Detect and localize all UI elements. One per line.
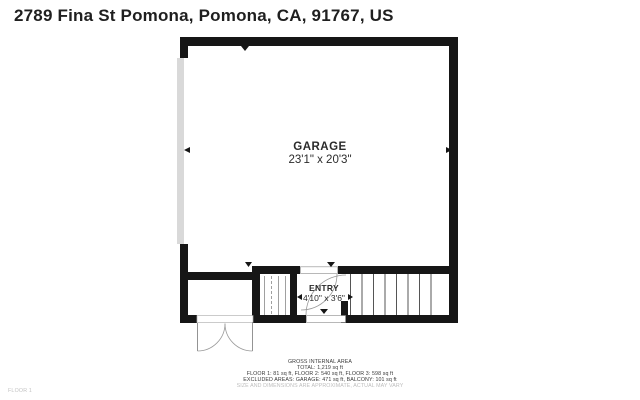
area-disclaimer: SIZE AND DIMENSIONS ARE APPROXIMATE, ACT… xyxy=(170,383,470,389)
tick-down-entry-top xyxy=(327,262,335,267)
plan-linework xyxy=(0,0,640,400)
tick-right-mid xyxy=(446,147,452,153)
porch-double-door xyxy=(197,316,253,351)
area-summary: GROSS INTERNAL AREA TOTAL: 1,219 sq ft F… xyxy=(170,359,470,389)
floor-number-label: FLOOR 1 xyxy=(8,388,32,394)
tick-down-entry-bottom xyxy=(320,309,328,314)
room-label-garage: GARAGE 23'1" x 20'3" xyxy=(240,141,400,166)
entry-dimensions: 4'10" x 3'6" xyxy=(274,294,374,304)
room-label-entry: ENTRY 4'10" x 3'6" xyxy=(274,284,374,303)
garage-dimensions: 23'1" x 20'3" xyxy=(240,154,400,167)
tick-markers xyxy=(184,46,452,314)
floor-plan-page: 2789 Fina St Pomona, Pomona, CA, 91767, … xyxy=(0,0,640,400)
garage-name: GARAGE xyxy=(240,141,400,154)
tick-left-mid xyxy=(184,147,190,153)
tick-down-top-wall xyxy=(241,46,249,51)
tick-down-porch xyxy=(245,262,252,267)
